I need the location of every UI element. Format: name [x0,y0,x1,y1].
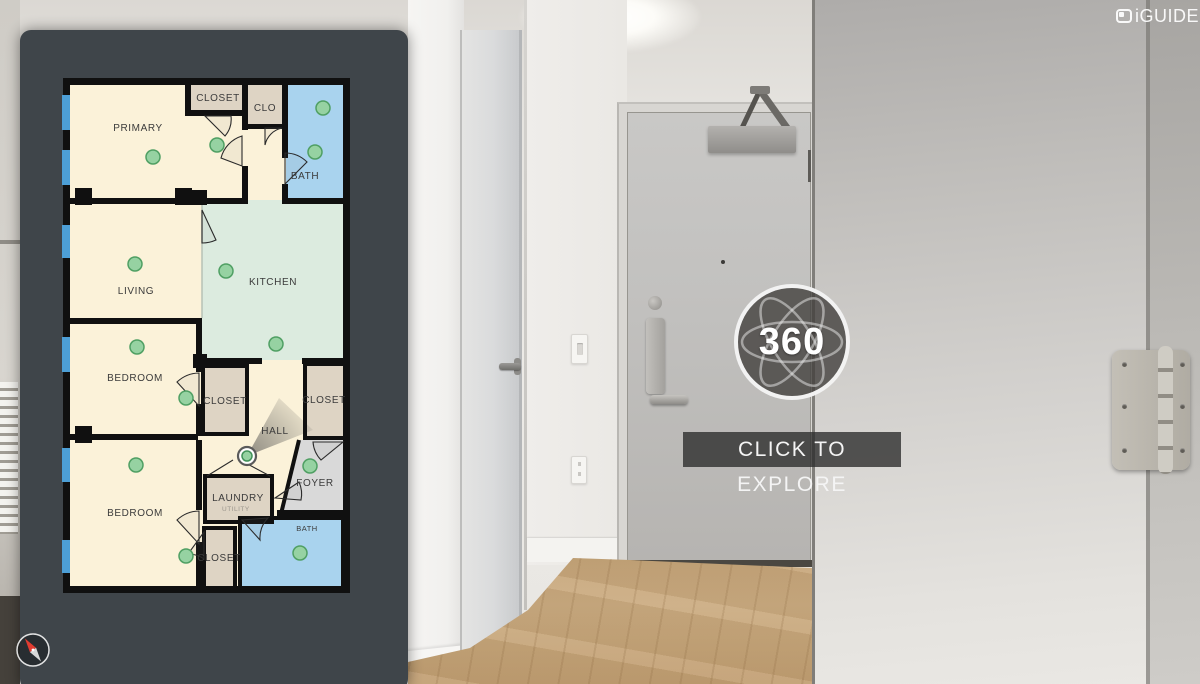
room-label-kitchen: KITCHEN [249,277,297,288]
power-outlet [571,456,587,484]
waypoint[interactable] [129,458,143,472]
closet-door [460,30,522,655]
iguide-logo[interactable]: iGUIDE [1116,5,1199,27]
room-label-closet-primary: CLOSET [196,93,240,104]
badge-360-label: 360 [759,321,825,364]
viewer-root: 360 CLICK TO EXPLORE iGUIDE [0,0,1200,684]
explore-360-badge[interactable]: 360 [734,284,850,400]
frame-strike [808,150,811,182]
waypoint[interactable] [293,546,307,560]
door-jamb [1150,0,1200,684]
waypoint[interactable] [130,340,144,354]
room-label-primary: PRIMARY [113,123,163,134]
waypoint[interactable] [269,337,283,351]
brand-name: iGUIDE [1135,6,1199,27]
room-label-living: LIVING [118,286,154,297]
left-wall-sliver [0,0,20,684]
room-label-bath-upper: BATH [291,171,319,182]
room-bath-upper [286,82,346,200]
room-label-hall: HALL [261,426,288,437]
room-label-clo: CLO [254,103,276,114]
open-door [812,0,1200,684]
compass[interactable] [15,632,51,668]
waypoint[interactable] [128,257,142,271]
room-label-bath-lower: BATH [296,524,317,533]
click-to-explore-button[interactable]: CLICK TO EXPLORE [683,432,901,467]
room-label-closet-mid-left: CLOSET [203,396,247,407]
door-lever [650,395,688,404]
waypoint[interactable] [210,138,224,152]
radiator [0,382,18,534]
room-label-closet-mid-right: CLOSET [302,395,346,406]
hinge-screw [1122,362,1127,367]
hinge-screw [1180,404,1185,409]
floorplan-svg[interactable]: PRIMARY CLOSET CLO BATH LIVING KITCHEN B… [55,70,360,600]
waypoint[interactable] [179,391,193,405]
hinge-barrel [1158,346,1173,474]
waypoint[interactable] [316,101,330,115]
waypoint[interactable] [219,264,233,278]
waypoint[interactable] [179,549,193,563]
room-label-foyer: FOYER [296,478,333,489]
vestibule-wall [408,0,464,684]
deadbolt [648,296,662,310]
lock-plate [646,318,665,394]
door-closer [708,126,796,153]
waypoint[interactable] [308,145,322,159]
light-switch-toggle [577,343,583,355]
outlet-socket [578,462,581,466]
floorplan-panel: PRIMARY CLOSET CLO BATH LIVING KITCHEN B… [20,30,408,684]
room-label-bedroom-1: BEDROOM [107,373,163,384]
peephole [721,260,725,264]
waypoint[interactable] [303,459,317,473]
room-label-closet-lower: CLOSET [197,553,241,564]
room-label-bedroom-2: BEDROOM [107,508,163,519]
room-sublabel-utility: UTILITY [222,506,250,513]
room-label-laundry: LAUNDRY [212,493,264,504]
camera-icon [1116,9,1132,23]
hinge-screw [1122,404,1127,409]
outlet-socket [578,472,581,476]
door-lever-icon [499,363,521,370]
hinge-screw [1180,362,1185,367]
waypoint[interactable] [146,150,160,164]
hinge-screw [1180,448,1185,453]
active-waypoint-core [242,451,252,461]
hinge-screw [1122,448,1127,453]
wall-rail-line [0,240,20,244]
